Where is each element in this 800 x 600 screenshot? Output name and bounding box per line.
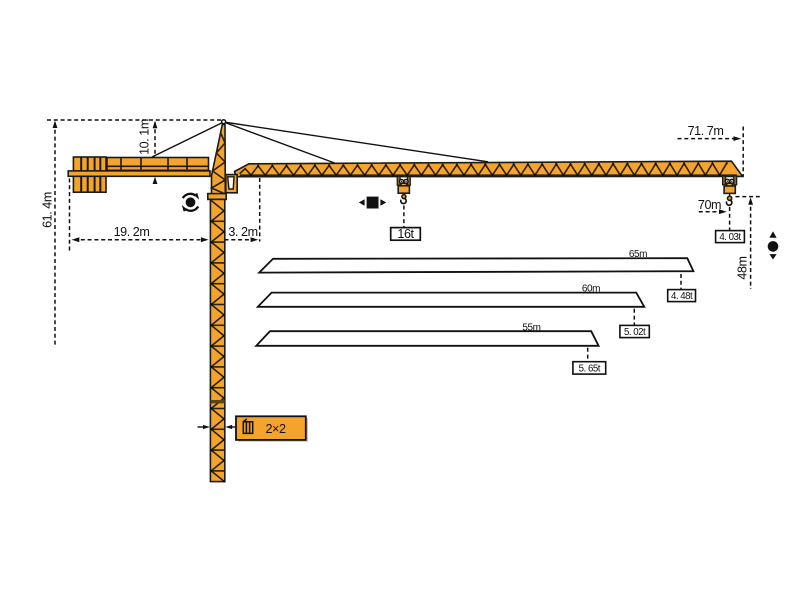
svg-text:71. 7m: 71. 7m: [688, 124, 724, 138]
svg-text:3. 2m: 3. 2m: [228, 225, 257, 239]
svg-text:61. 4m: 61. 4m: [41, 192, 55, 228]
svg-text:5. 65t: 5. 65t: [579, 363, 601, 374]
svg-text:5. 02t: 5. 02t: [624, 327, 646, 338]
svg-text:48m: 48m: [736, 256, 750, 279]
svg-text:60m: 60m: [582, 284, 600, 295]
svg-text:19. 2m: 19. 2m: [114, 225, 150, 239]
svg-text:55m: 55m: [522, 322, 540, 333]
svg-text:70m: 70m: [698, 198, 721, 212]
svg-text:65m: 65m: [629, 249, 647, 260]
svg-text:16t: 16t: [397, 227, 414, 241]
svg-text:4. 48t: 4. 48t: [671, 291, 693, 302]
svg-text:10. 1m: 10. 1m: [138, 119, 152, 155]
svg-text:4. 03t: 4. 03t: [719, 232, 741, 243]
svg-text:2×2: 2×2: [265, 422, 285, 436]
